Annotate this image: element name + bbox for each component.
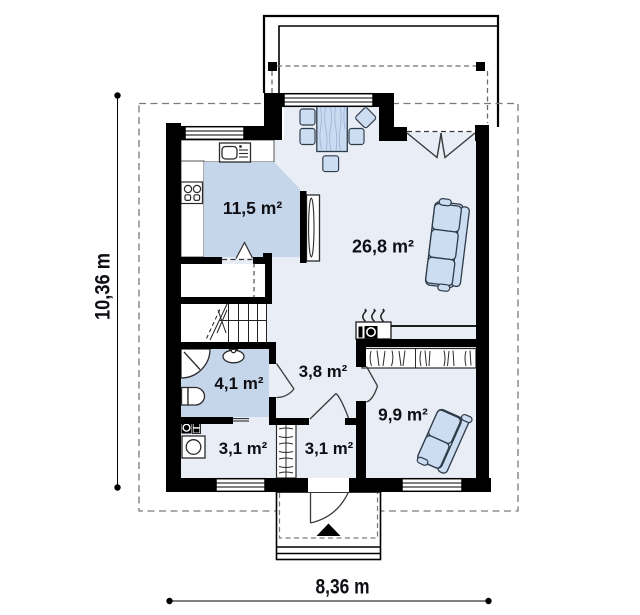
svg-text:4,1 m²: 4,1 m² xyxy=(214,374,263,393)
svg-text:8,36 m: 8,36 m xyxy=(316,576,370,599)
svg-text:26,8 m²: 26,8 m² xyxy=(352,237,414,257)
svg-text:3,1 m²: 3,1 m² xyxy=(219,439,268,458)
svg-text:11,5 m²: 11,5 m² xyxy=(223,198,283,218)
svg-text:3,8 m²: 3,8 m² xyxy=(299,362,348,381)
svg-text:9,9 m²: 9,9 m² xyxy=(378,405,428,425)
svg-text:3,1 m²: 3,1 m² xyxy=(305,439,354,458)
svg-text:10,36 m: 10,36 m xyxy=(92,253,115,320)
